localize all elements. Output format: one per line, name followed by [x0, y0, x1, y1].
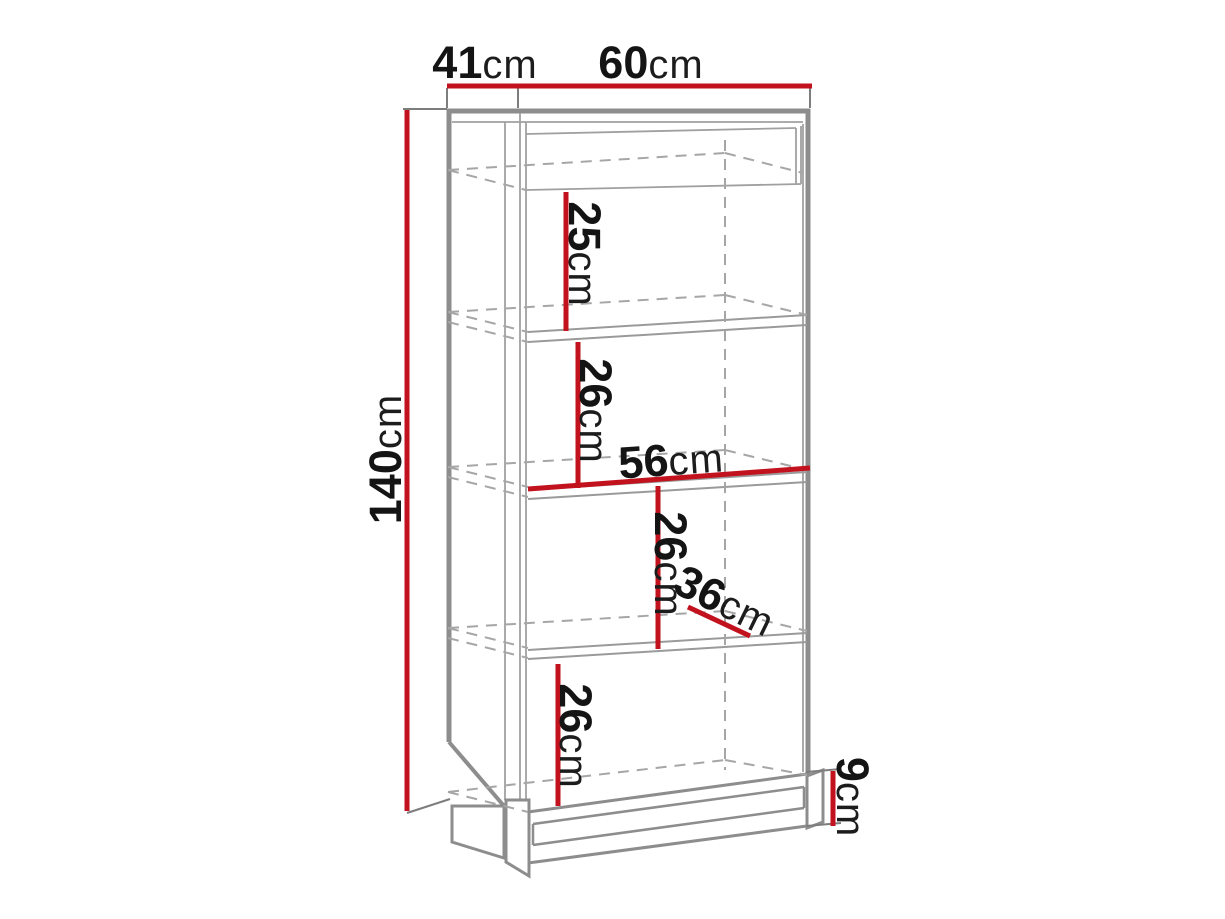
- dim-label-inner-width: 56cm: [617, 430, 726, 488]
- ceiling-depth-left: [448, 170, 526, 190]
- side-panel-notch-edge: [449, 742, 504, 806]
- base-rail-top: [533, 808, 804, 845]
- shelf1-depth-left: [448, 312, 528, 332]
- dim-label-top-depth: 41cm: [432, 37, 537, 88]
- dim-label-section1: 25cm: [559, 201, 610, 306]
- ceiling-depth-right: [725, 153, 803, 173]
- ceiling-back-edge: [448, 153, 725, 170]
- shelf1-depth-right: [725, 295, 807, 315]
- shelf1-front-bottom: [528, 325, 807, 342]
- dim-label-section2: 26cm: [570, 358, 621, 463]
- shelf3-depth-left2: [448, 638, 528, 658]
- shelf1-depth-left2: [448, 322, 528, 342]
- dim-label-base-height: 9cm: [827, 757, 878, 837]
- shelf2-depth-left: [448, 467, 528, 487]
- furniture-dimension-diagram: 41cm 60cm 140cm 25cm 26cm 56cm 26cm 36cm…: [0, 0, 1225, 919]
- top-recess: [526, 126, 801, 190]
- right-base-side: [807, 770, 823, 828]
- shelf3-front-bottom: [528, 642, 807, 659]
- height-dim-tick-bottom: [407, 799, 450, 813]
- interior-ceiling-edge: [526, 184, 801, 190]
- shelf3-depth-left: [448, 628, 528, 648]
- drawing-canvas: 41cm 60cm 140cm 25cm 26cm 56cm 26cm 36cm…: [0, 0, 1225, 919]
- bottom-depth-right: [725, 760, 807, 775]
- shelf2-depth-left2: [448, 477, 528, 497]
- base-rail-bottom: [528, 826, 807, 863]
- dim-label-top-width: 60cm: [598, 37, 703, 88]
- dim-label-section4: 26cm: [550, 683, 601, 788]
- dim-label-height: 140cm: [360, 394, 411, 524]
- left-side-foot: [452, 806, 504, 858]
- top-recess-upper-edge: [526, 128, 796, 134]
- cabinet-structure: [447, 109, 823, 876]
- shelf1-front-top: [528, 315, 807, 332]
